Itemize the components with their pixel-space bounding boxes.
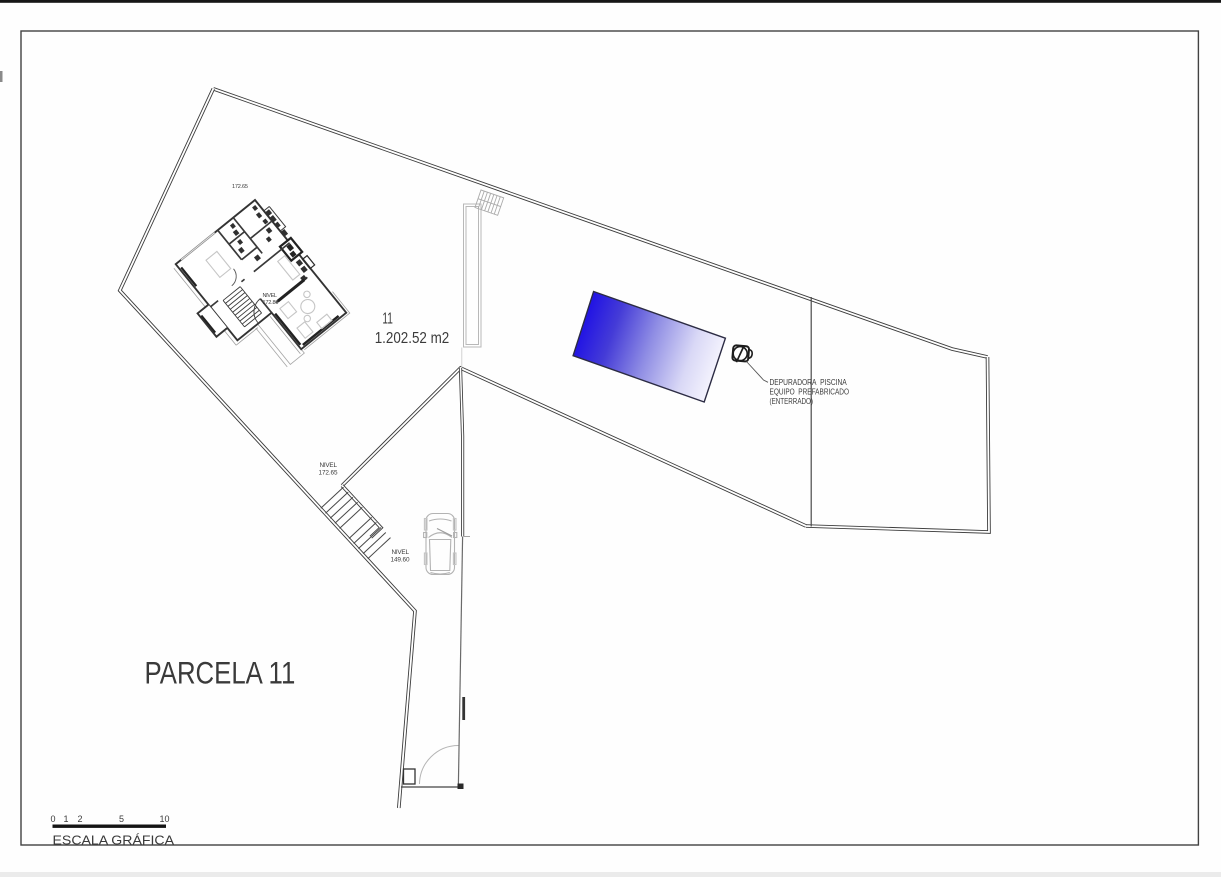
svg-text:NIVEL: NIVEL (263, 293, 278, 299)
svg-text:PARCELA 11: PARCELA 11 (145, 655, 296, 691)
svg-text:10: 10 (160, 814, 170, 824)
svg-text:DEPURADORA PISCINA: DEPURADORA PISCINA (770, 377, 848, 387)
svg-text:NIVEL: NIVEL (320, 462, 338, 469)
svg-text:1: 1 (64, 814, 69, 824)
svg-text:EQUIPO PREFABRICADO: EQUIPO PREFABRICADO (770, 387, 850, 397)
svg-text:149.60: 149.60 (391, 557, 410, 564)
svg-text:172.65: 172.65 (232, 184, 248, 190)
svg-text:0: 0 (51, 814, 56, 824)
svg-text:(ENTERRADO): (ENTERRADO) (770, 396, 814, 406)
svg-text:5: 5 (119, 814, 124, 824)
svg-text:172.80: 172.80 (263, 300, 279, 306)
svg-text:11: 11 (382, 311, 393, 328)
svg-text:NIVEL: NIVEL (392, 549, 410, 556)
svg-text:2: 2 (78, 814, 83, 824)
svg-text:ESCALA GRÁFICA: ESCALA GRÁFICA (53, 833, 175, 848)
svg-text:1.202.52 m2: 1.202.52 m2 (375, 330, 450, 347)
svg-text:172.65: 172.65 (319, 470, 338, 477)
